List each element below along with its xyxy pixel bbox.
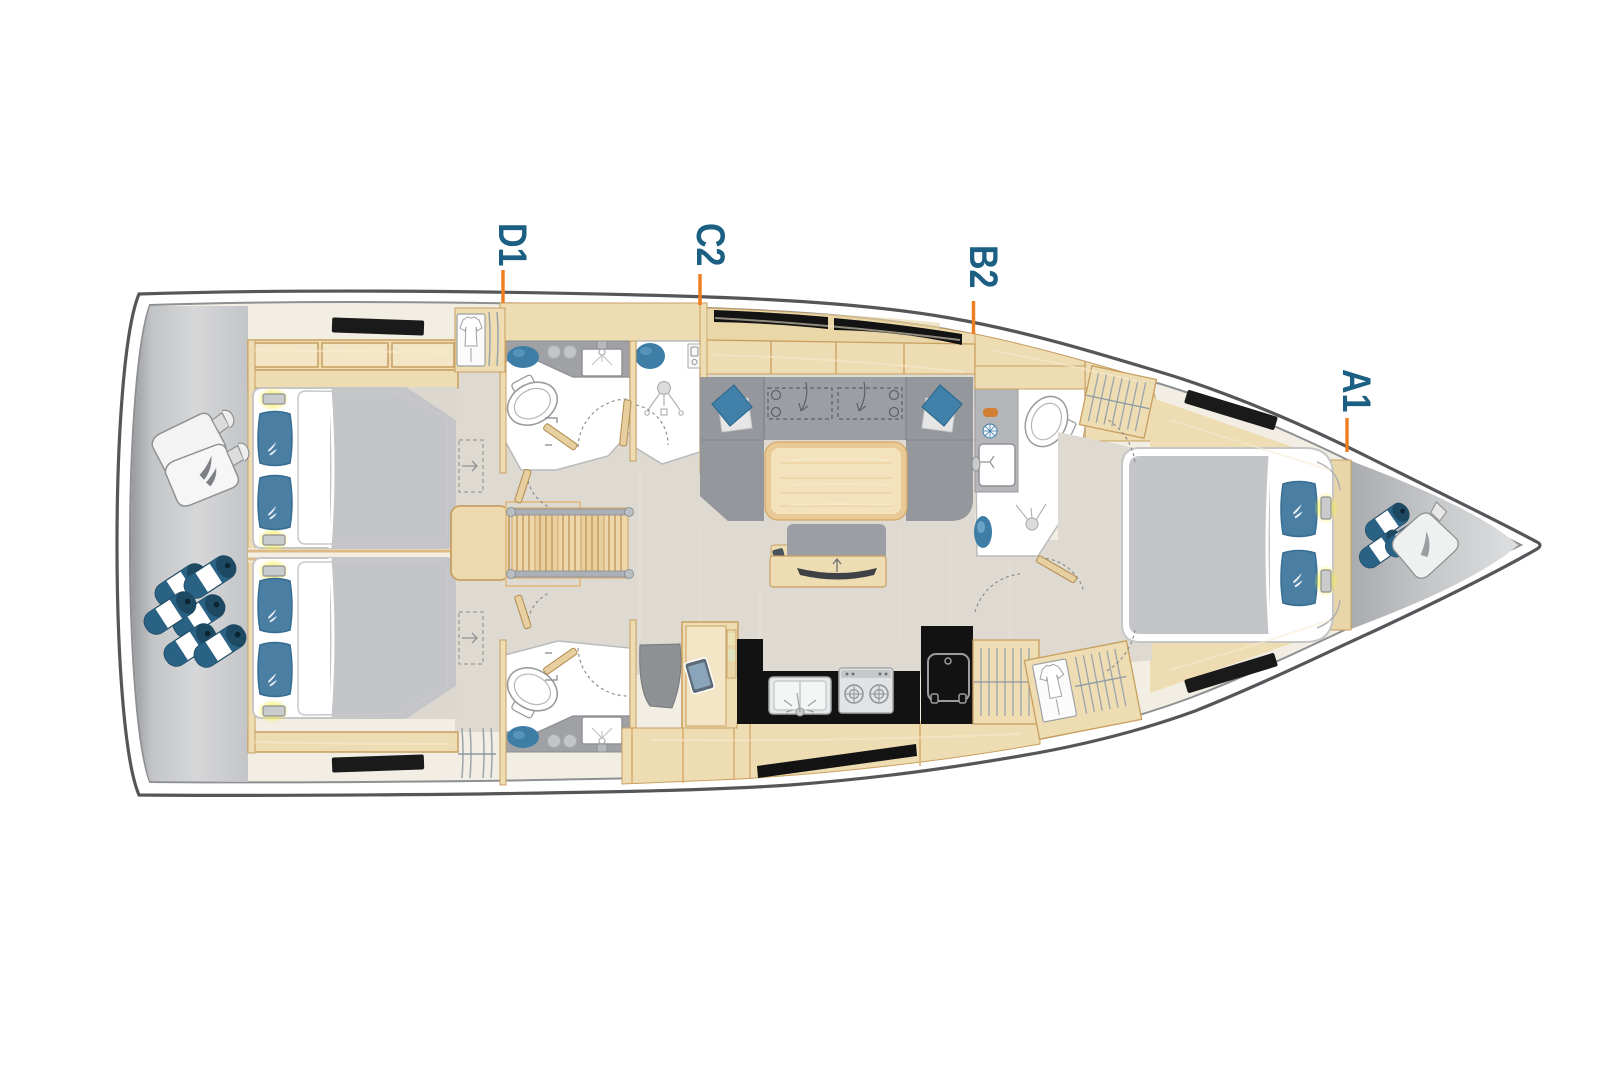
svg-text:D1: D1 (490, 223, 535, 266)
svg-text:A1: A1 (1334, 369, 1379, 412)
svg-text:C2: C2 (688, 223, 733, 266)
svg-text:B2: B2 (961, 245, 1006, 288)
